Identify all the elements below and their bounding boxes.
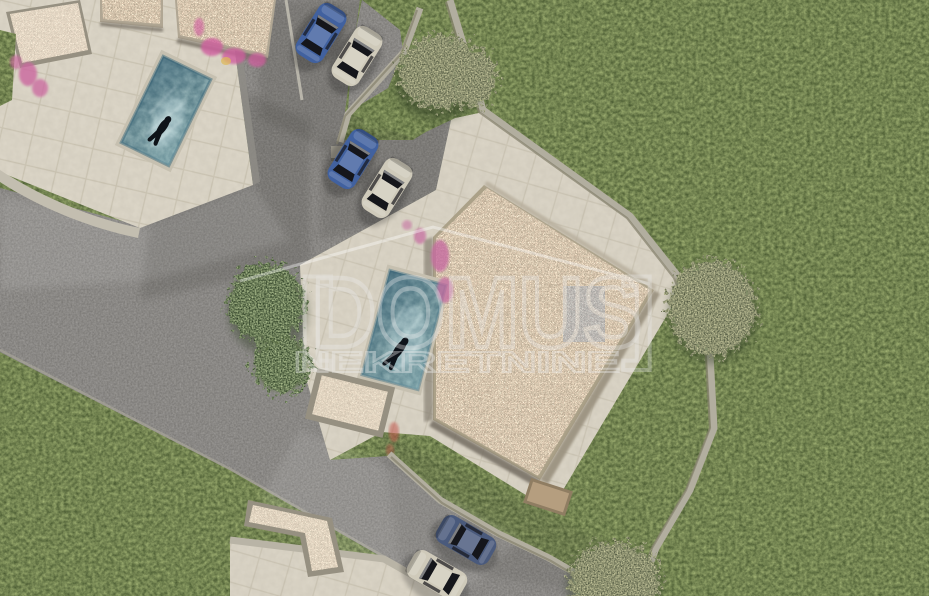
svg-text:]: ] (622, 259, 655, 371)
svg-text:NEKRETNINE: NEKRETNINE (294, 347, 620, 379)
